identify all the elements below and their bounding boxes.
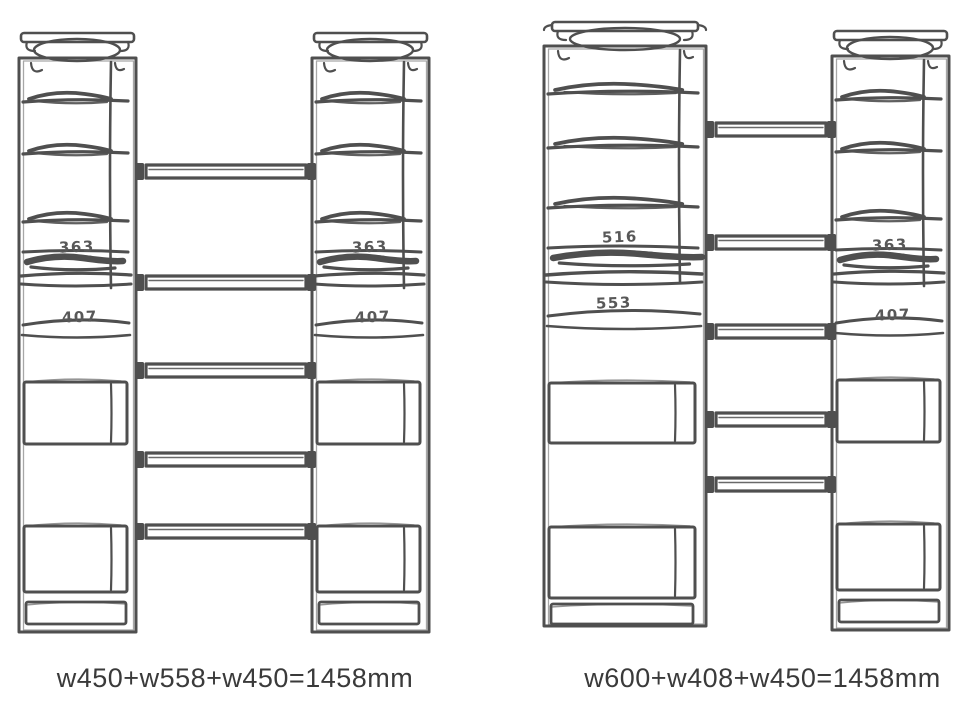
dim-label: 363 bbox=[352, 237, 388, 256]
configuration-2: 516 553 363 407 bbox=[544, 22, 949, 630]
diagram-canvas: 363 407 363 407 516 553 363 407 bbox=[0, 0, 975, 719]
dim-label: 407 bbox=[355, 307, 391, 326]
caption-configuration-1: w450+w558+w450=1458mm bbox=[15, 663, 455, 694]
dim-label: 363 bbox=[59, 237, 95, 256]
dim-label: 553 bbox=[596, 293, 632, 312]
config2-crossbars bbox=[705, 121, 836, 493]
dim-label: 407 bbox=[62, 307, 98, 326]
sketch-page: 363 407 363 407 516 553 363 407 bbox=[0, 0, 975, 719]
dim-label: 407 bbox=[875, 305, 911, 324]
config1-crossbars bbox=[135, 163, 316, 540]
config2-left-tower bbox=[544, 22, 706, 626]
dim-label: 363 bbox=[872, 235, 908, 254]
dim-label: 516 bbox=[602, 227, 638, 246]
config2-right-tower bbox=[832, 31, 949, 630]
config1-right-tower bbox=[312, 33, 429, 632]
config1-left-tower bbox=[19, 33, 136, 632]
configuration-1: 363 407 363 407 bbox=[19, 33, 429, 632]
caption-configuration-2: w600+w408+w450=1458mm bbox=[550, 663, 975, 694]
